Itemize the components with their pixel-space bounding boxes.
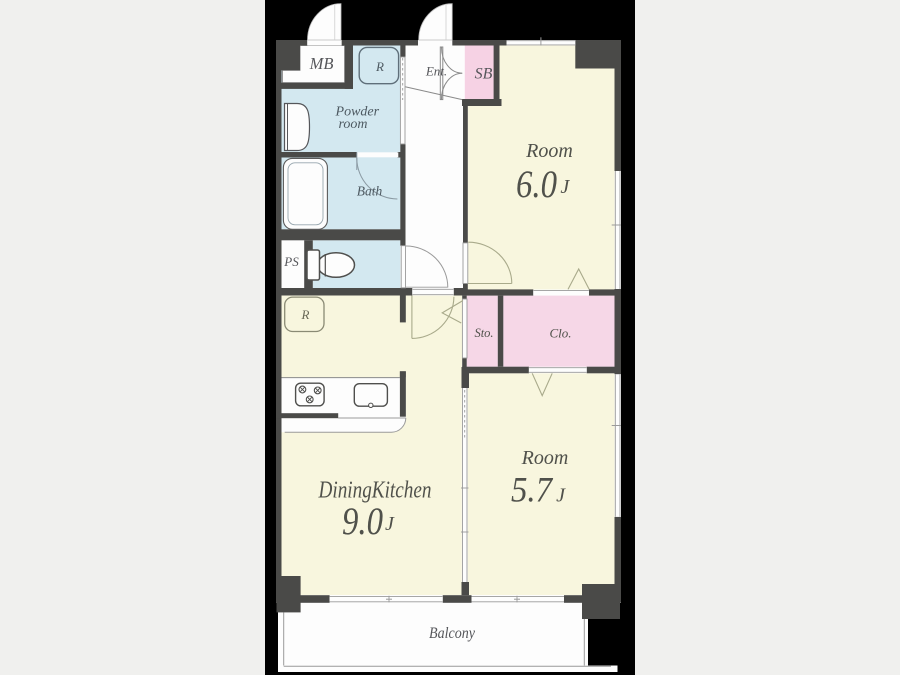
svg-text:Sto.: Sto. [474, 326, 493, 340]
svg-text:R: R [301, 307, 310, 322]
svg-text:Balcony: Balcony [429, 625, 476, 642]
svg-text:R: R [375, 59, 384, 74]
svg-text:J: J [556, 485, 566, 507]
svg-text:room: room [338, 117, 367, 132]
svg-text:6.0: 6.0 [516, 163, 557, 206]
svg-text:Clo.: Clo. [549, 326, 571, 341]
svg-text:Room: Room [521, 447, 569, 469]
svg-text:Room: Room [525, 140, 573, 162]
svg-text:Ent.: Ent. [425, 64, 447, 79]
svg-text:PS: PS [283, 254, 299, 269]
svg-text:5.7: 5.7 [511, 470, 554, 510]
svg-text:J: J [385, 513, 395, 535]
svg-text:J: J [560, 176, 570, 198]
svg-text:Bath: Bath [357, 184, 383, 199]
svg-text:MB: MB [309, 54, 334, 73]
svg-text:SB: SB [475, 66, 493, 83]
svg-text:9.0: 9.0 [342, 500, 383, 543]
